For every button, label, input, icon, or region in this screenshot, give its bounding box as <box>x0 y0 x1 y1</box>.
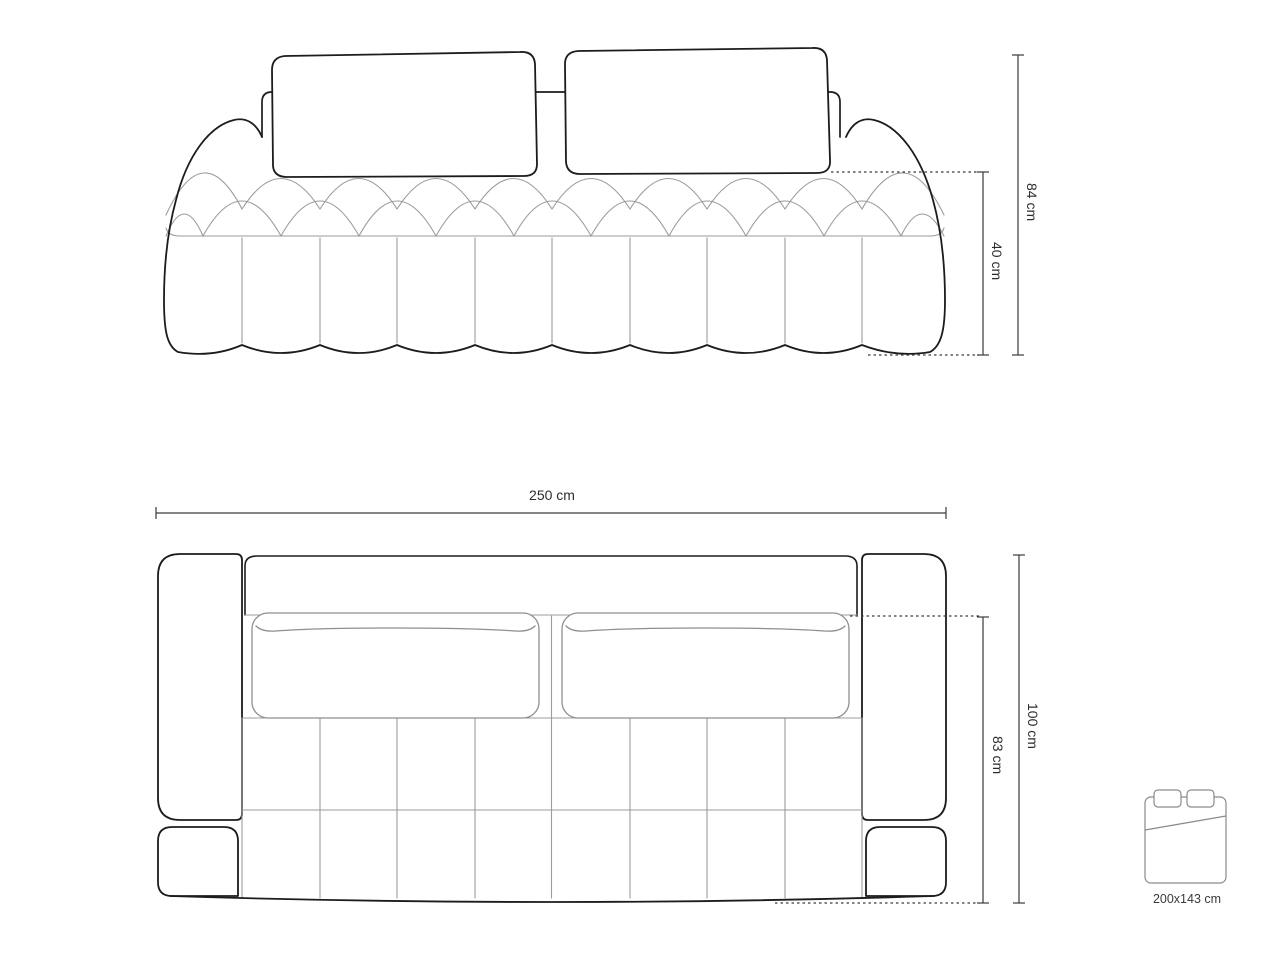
top-arm-left-lower <box>158 827 238 896</box>
top-arm-right <box>862 554 946 820</box>
bed-icon <box>1145 790 1226 883</box>
dimension-line-total-width <box>156 507 946 519</box>
dim-label-total-height: 84 cm <box>1025 183 1039 221</box>
top-arm-left <box>158 554 242 820</box>
top-backrest-outline <box>245 556 857 615</box>
sofa-front-view-drawing <box>164 48 945 354</box>
bed-icon-pillow-left <box>1154 790 1181 807</box>
sofa-top-view-drawing <box>158 554 946 902</box>
bed-icon-mattress <box>1145 797 1226 883</box>
front-pillow-left <box>272 52 537 177</box>
dimension-line-total-depth <box>1013 555 1025 903</box>
front-bubble-row-upper <box>166 173 944 215</box>
top-cushion-left <box>252 613 539 718</box>
front-pillow-right <box>565 48 830 174</box>
dimension-line-seat-depth <box>977 617 989 903</box>
top-arm-right-lower <box>866 827 946 896</box>
front-channel-lines <box>242 238 862 343</box>
top-seat-cushions <box>252 613 849 718</box>
dimension-line-seat-height <box>977 172 989 355</box>
dim-label-seat-depth: 83 cm <box>991 736 1005 774</box>
bed-icon-pillow-right <box>1187 790 1214 807</box>
front-bubble-row-lower <box>166 201 944 236</box>
top-cushion-right <box>562 613 849 718</box>
dim-label-total-width: 250 cm <box>512 488 592 502</box>
dimension-extension-dashed <box>831 172 979 355</box>
dim-label-seat-height: 40 cm <box>990 242 1004 280</box>
dim-label-total-depth: 100 cm <box>1026 703 1040 749</box>
sofa-dimension-drawing <box>0 0 1280 960</box>
technical-drawing-canvas: 84 cm 40 cm 250 cm 100 cm 83 cm 200x143 … <box>0 0 1280 960</box>
dimension-line-total-height <box>1012 55 1024 355</box>
bed-size-label: 200x143 cm <box>1137 892 1237 906</box>
